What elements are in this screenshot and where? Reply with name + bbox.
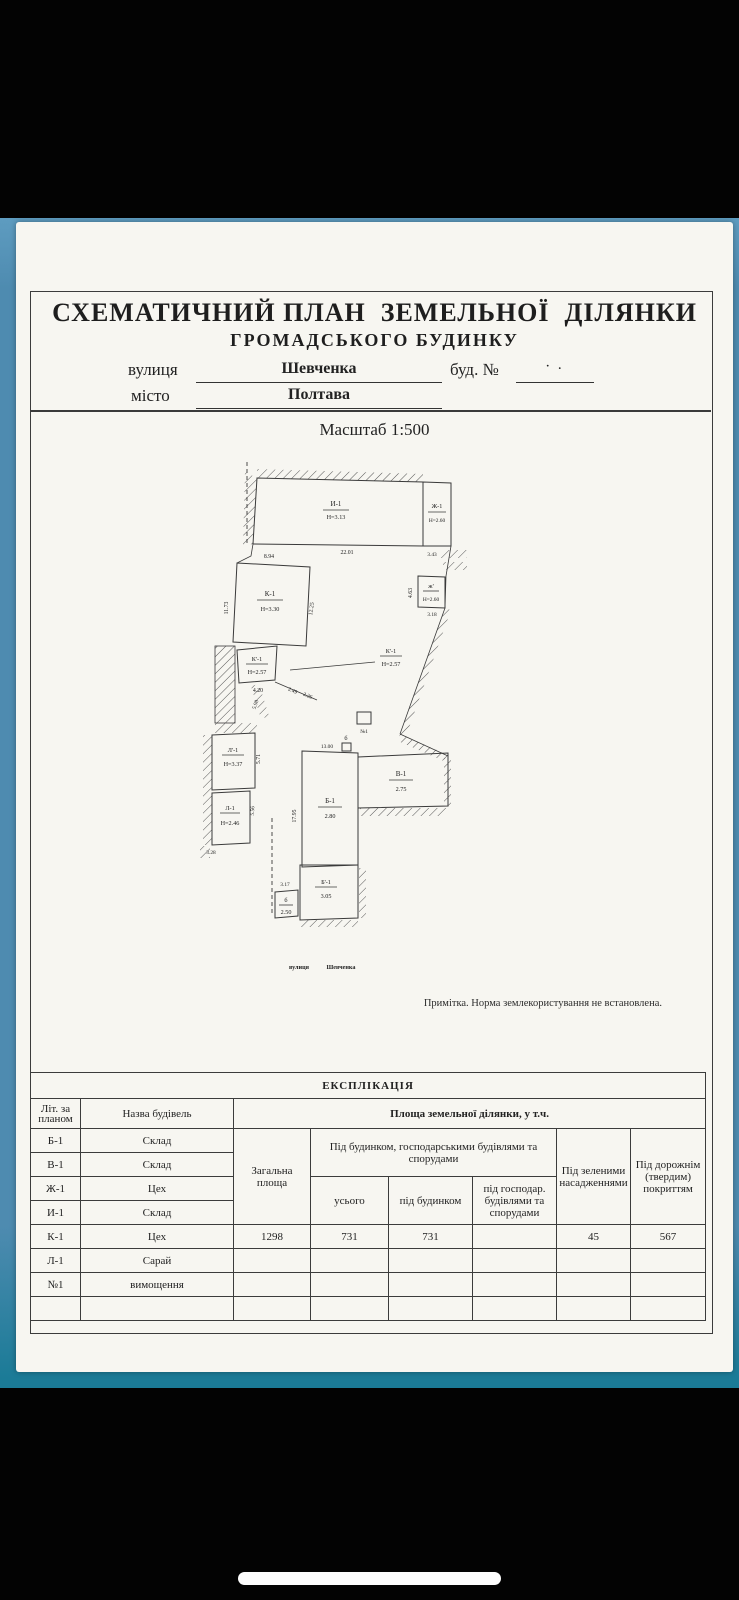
building-lp1: Л'-1 Н=3.37: [212, 733, 255, 790]
cell-total-sub: 731: [311, 1225, 389, 1249]
dim-4-63: 4.63: [408, 588, 414, 598]
building-i1: И-1 Н=3.13: [253, 478, 423, 546]
header-separator-line: [30, 410, 711, 412]
svg-text:Ж-1: Ж-1: [432, 503, 443, 510]
col-header-road: Під дорожнім (твердим) покриттям: [631, 1129, 706, 1225]
row-lit: [31, 1297, 81, 1321]
row-name: Сарай: [81, 1249, 234, 1273]
svg-text:ж': ж': [427, 583, 433, 590]
bottom-letterbox-bar: [0, 1388, 739, 1600]
svg-text:Н=2.57: Н=2.57: [382, 661, 401, 668]
svg-text:2.80: 2.80: [325, 813, 336, 820]
explication-table: ЕКСПЛІКАЦІЯ Літ. за планом Назва будівел…: [30, 1072, 706, 1321]
row-lit: К-1: [31, 1225, 81, 1249]
col-header-under-house: під будинком: [389, 1177, 473, 1225]
svg-text:Н=2.60: Н=2.60: [423, 597, 440, 603]
svg-text:В-1: В-1: [396, 770, 407, 778]
svg-text:2.50: 2.50: [281, 909, 292, 916]
bp1-right-hatch: [359, 868, 366, 918]
dim-17-95: 17.95: [292, 809, 298, 822]
boundary-step: [237, 544, 253, 563]
dim-5-56: 5.56: [250, 806, 257, 816]
row-lit: Б-1: [31, 1129, 81, 1153]
dim-3-43: 3.43: [427, 552, 437, 558]
col-header-area-group: Площа земельної ділянки, у т.ч.: [234, 1099, 706, 1129]
building-number-label: буд. №: [450, 360, 499, 380]
row-name: Склад: [81, 1153, 234, 1177]
dim-2-49: 2.49: [287, 686, 298, 695]
dim-3-28: 3.28: [206, 850, 216, 856]
street-field-value: Шевченка: [196, 360, 442, 383]
home-indicator[interactable]: [238, 1572, 501, 1585]
svg-text:б: б: [284, 897, 287, 904]
dim-2-26: 2.26: [302, 691, 313, 700]
structure-b-top: б: [342, 735, 351, 751]
col-header-lit: Літ. за планом: [31, 1099, 81, 1129]
street-field-row: вулиця Шевченка буд. № · .: [16, 360, 733, 384]
street-caption-word2: Шевченка: [326, 964, 355, 971]
svg-text:К'-1: К'-1: [386, 648, 396, 655]
svg-text:К'-1: К'-1: [252, 656, 262, 663]
boundary-right-mid: [400, 608, 445, 734]
building-kp1-right-label: К'-1 Н=2.57: [380, 648, 402, 668]
col-header-total-sub: усього: [311, 1177, 389, 1225]
svg-text:К-1: К-1: [265, 590, 276, 598]
dim-12-25: 12.25: [308, 602, 316, 616]
cell-road: 567: [631, 1225, 706, 1249]
row-lit: Л-1: [31, 1249, 81, 1273]
building-bp1: Б'-1 3.05: [300, 865, 358, 920]
phone-screenshot: СХЕМАТИЧНИЙ ПЛАН ЗЕМЕЛЬНОЇ ДІЛЯНКИ ГРОМА…: [0, 0, 739, 1600]
v1-bottom-hatch: [360, 808, 446, 816]
col-header-name: Назва будівель: [81, 1099, 234, 1129]
svg-text:Н=3.13: Н=3.13: [327, 514, 346, 521]
svg-text:Б-1: Б-1: [325, 797, 335, 805]
table-row: [31, 1297, 706, 1321]
row-name: Цех: [81, 1177, 234, 1201]
site-plan-drawing: И-1 Н=3.13 Ж-1 Н=2.60 К-1 Н=3.30 ж' Н=2: [195, 456, 470, 978]
cell-under-house: 731: [389, 1225, 473, 1249]
hatched-wall-left: [215, 646, 235, 723]
col-header-green: Під зеленими насадженнями: [557, 1129, 631, 1225]
scanned-document-page: СХЕМАТИЧНИЙ ПЛАН ЗЕМЕЛЬНОЇ ДІЛЯНКИ ГРОМА…: [16, 222, 733, 1372]
city-field-value: Полтава: [196, 386, 442, 409]
svg-text:Н=2.57: Н=2.57: [248, 669, 267, 676]
building-zh-prime: ж' Н=2.60: [418, 576, 445, 608]
map-scale-label: Масштаб 1:500: [16, 420, 733, 440]
kp1b-leader-line: [290, 662, 375, 670]
svg-text:№1: №1: [360, 729, 368, 735]
table-row: №1 вимощення: [31, 1273, 706, 1297]
boundary-hatch-east: [400, 608, 451, 736]
svg-text:Н=3.37: Н=3.37: [224, 761, 243, 768]
dim-8-94: 8.94: [264, 554, 274, 560]
col-header-under-buildings: Під будинком, господарськими будівлями т…: [311, 1129, 557, 1177]
building-kp1-left: К'-1 Н=2.57: [237, 646, 277, 683]
cell-total-area: 1298: [234, 1225, 311, 1249]
dim-13-00: 13.00: [321, 744, 333, 750]
hatch-band: [215, 723, 257, 733]
row-name: Склад: [81, 1129, 234, 1153]
svg-text:Н=3.30: Н=3.30: [261, 606, 280, 613]
row-name: [81, 1297, 234, 1321]
table-title: ЕКСПЛІКАЦІЯ: [31, 1073, 706, 1099]
svg-text:Л-1: Л-1: [225, 805, 234, 812]
row-name: Склад: [81, 1201, 234, 1225]
svg-text:3.05: 3.05: [321, 893, 332, 900]
city-field-label: місто: [131, 386, 170, 406]
table-row: К-1 Цех 1298 731 731 45 567: [31, 1225, 706, 1249]
building-zh1: Ж-1 Н=2.60: [423, 482, 451, 546]
svg-text:2.75: 2.75: [396, 786, 407, 793]
structure-n1: №1: [357, 712, 371, 735]
col-header-total: Загальна площа: [234, 1129, 311, 1225]
svg-text:Н=2.60: Н=2.60: [429, 518, 446, 524]
dim-5-71: 5.71: [256, 754, 262, 764]
svg-text:Н=2.46: Н=2.46: [221, 820, 240, 827]
building-l1: Л-1 Н=2.46: [212, 791, 250, 845]
svg-text:б: б: [344, 735, 347, 742]
boundary-hatch-diag: [398, 734, 448, 762]
city-field-row: місто Полтава: [16, 386, 733, 410]
col-header-under-household: під господар. будівлями та спорудами: [473, 1177, 557, 1225]
street-field-label: вулиця: [128, 360, 178, 380]
table-row: Л-1 Сарай: [31, 1249, 706, 1273]
building-b1: Б-1 2.80: [302, 751, 358, 867]
building-number-value: · .: [516, 360, 594, 383]
boundary-hatch-right1: [441, 550, 467, 558]
top-letterbox-bar: [0, 0, 739, 218]
row-lit: В-1: [31, 1153, 81, 1177]
dim-11-73: 11.73: [224, 601, 230, 614]
row-lit: И-1: [31, 1201, 81, 1225]
table-row: Б-1 Склад Загальна площа Під будинком, г…: [31, 1129, 706, 1153]
dim-3-17: 3.17: [280, 882, 290, 888]
document-title: СХЕМАТИЧНИЙ ПЛАН ЗЕМЕЛЬНОЇ ДІЛЯНКИ: [16, 298, 733, 328]
boundary-hatch-left: [203, 735, 212, 845]
row-name: Цех: [81, 1225, 234, 1249]
street-caption-word1: вулиця: [289, 964, 310, 971]
dim-22-01: 22.01: [340, 550, 353, 556]
cell-green: 45: [557, 1225, 631, 1249]
building-b-small: б 2.50: [275, 890, 298, 918]
building-k1: К-1 Н=3.30: [233, 563, 310, 646]
svg-text:Л'-1: Л'-1: [228, 747, 238, 754]
cell-under-household: [473, 1225, 557, 1249]
row-lit: Ж-1: [31, 1177, 81, 1201]
svg-text:И-1: И-1: [331, 500, 342, 508]
boundary-hatch-right2: [443, 562, 467, 570]
document-subtitle: ГРОМАДСЬКОГО БУДИНКУ: [16, 330, 733, 351]
bp1-bottom-hatch: [300, 920, 358, 927]
row-name: вимощення: [81, 1273, 234, 1297]
dim-4-20: 4.20: [253, 688, 263, 694]
building-v1: В-1 2.75: [358, 753, 448, 808]
note-text: Примітка. Норма землекористування не вст…: [306, 998, 662, 1009]
dim-3-18: 3.18: [427, 612, 437, 618]
svg-text:Б'-1: Б'-1: [321, 879, 331, 886]
row-lit: №1: [31, 1273, 81, 1297]
